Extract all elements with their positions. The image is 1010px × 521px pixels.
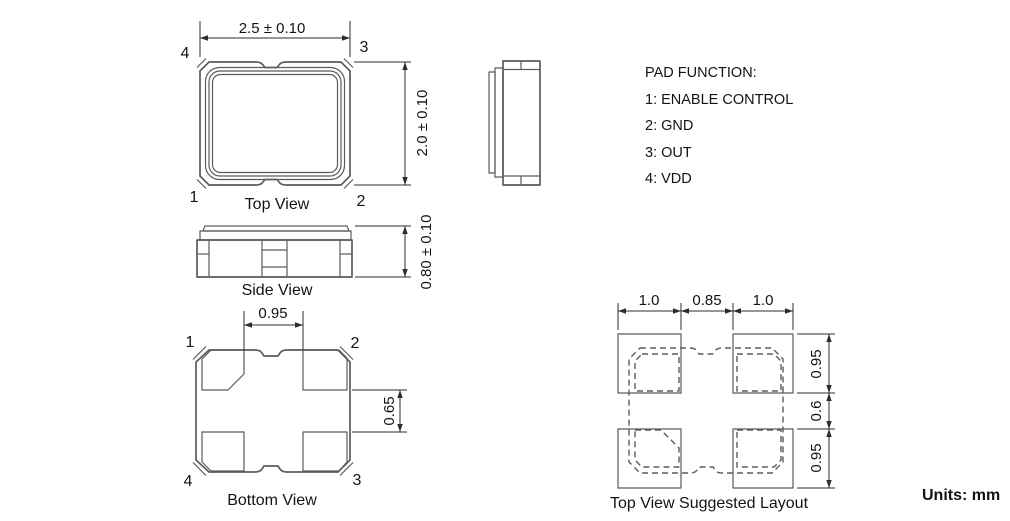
bottom-view-pads [202, 350, 347, 471]
layout-top-dimensions: 1.0 0.85 1.0 [618, 292, 793, 330]
top-view-width-dim-text: 2.5 ± 0.10 [239, 20, 306, 37]
layout-dim-center-gap: 0.85 [692, 292, 721, 309]
technical-drawing: 2.5 ± 0.10 2.0 ± 0.10 4 3 1 2 Top V [0, 0, 1010, 521]
top-view-height-dimension: 2.0 ± 0.10 [354, 62, 431, 185]
layout-land-pads [618, 334, 793, 488]
top-view-title: Top View [245, 196, 310, 213]
end-view-drawing [489, 61, 540, 185]
layout-land-pad-bottom-left [618, 429, 681, 488]
layout-dim-middle-gap: 0.6 [808, 401, 825, 422]
pad-function-block: PAD FUNCTION: 1: ENABLE CONTROL 2: GND 3… [645, 60, 793, 193]
pad-function-item-3: 3: OUT [645, 140, 793, 167]
bottom-view-pin-3-label: 3 [353, 472, 362, 489]
end-view-lid-step-1 [495, 68, 503, 177]
bottom-view-pad-1 [202, 350, 244, 390]
bottom-view-pin-1-label: 1 [186, 334, 195, 351]
bottom-view-package-outline [196, 350, 350, 472]
side-view-center-block [262, 240, 287, 277]
bottom-view-pad-4 [202, 432, 244, 471]
end-view-lid-step-2 [489, 72, 495, 173]
top-view-height-dim-text: 2.0 ± 0.10 [414, 90, 431, 157]
suggested-layout-drawing: 1.0 0.85 1.0 0.95 0.6 0.95 Top View Sugg… [610, 292, 835, 512]
pad-function-title: PAD FUNCTION: [645, 60, 793, 87]
side-view-height-dimension: 0.80 ± 0.10 [355, 215, 435, 290]
side-view-title: Side View [242, 282, 313, 299]
bottom-view-pad-3 [303, 432, 347, 471]
bottom-view-pad-gap-x-text: 0.95 [258, 305, 287, 322]
pad-function-item-4: 4: VDD [645, 166, 793, 193]
layout-dim-bottom-pad-height: 0.95 [808, 443, 825, 472]
layout-land-pad-bottom-right [733, 429, 793, 488]
top-view-width-dimension: 2.5 ± 0.10 [200, 20, 350, 57]
layout-dim-top-pad-height: 0.95 [808, 349, 825, 378]
layout-land-pad-top-left [618, 334, 681, 393]
bottom-view-pin-2-label: 2 [351, 335, 360, 352]
suggested-layout-title: Top View Suggested Layout [610, 495, 809, 512]
bottom-view-title: Bottom View [227, 492, 317, 509]
bottom-view-pad-gap-y-text: 0.65 [381, 396, 398, 425]
top-view-pin-1-label: 1 [190, 189, 199, 206]
top-view-corner-castellations [197, 59, 353, 189]
top-view-package-outline [200, 62, 350, 185]
layout-dim-right-pad-width: 1.0 [753, 292, 774, 309]
pad-function-item-1: 1: ENABLE CONTROL [645, 87, 793, 114]
side-view-end-caps [197, 240, 352, 277]
side-view-height-dim-text: 0.80 ± 0.10 [418, 215, 435, 290]
layout-land-pad-top-right [733, 334, 793, 393]
units-label: Units: mm [922, 487, 1000, 505]
side-view-lid-step [200, 231, 351, 240]
top-view-lid-seam-lines [206, 68, 345, 180]
bottom-view-pad-2 [303, 350, 347, 390]
end-view-body [503, 61, 540, 185]
layout-dashed-pad-1-bottom-left [635, 430, 679, 467]
top-view-drawing: 2.5 ± 0.10 2.0 ± 0.10 4 3 1 2 Top V [181, 20, 431, 213]
side-view-body [197, 240, 352, 277]
side-view-drawing: 0.80 ± 0.10 Side View [197, 215, 435, 299]
layout-package-pads-dashed [635, 354, 781, 467]
top-view-pin-4-label: 4 [181, 45, 190, 62]
top-view-pin-2-label: 2 [357, 193, 366, 210]
layout-dim-left-pad-width: 1.0 [639, 292, 660, 309]
layout-dashed-pad-bottom-right [737, 430, 781, 467]
bottom-view-pad-gap-y-dimension: 0.65 [352, 390, 407, 432]
layout-right-dimensions: 0.95 0.6 0.95 [797, 334, 835, 488]
bottom-view-pad-gap-x-dimension: 0.95 [244, 305, 303, 350]
layout-dashed-pad-top-left [635, 354, 679, 391]
pad-function-item-2: 2: GND [645, 113, 793, 140]
bottom-view-drawing: 0.95 0.65 1 2 4 3 Bottom View [184, 305, 407, 509]
side-view-lid-top [203, 226, 349, 231]
layout-package-outline-dashed [629, 348, 783, 473]
top-view-pin-3-label: 3 [360, 39, 369, 56]
package-drawing-sheet: 2.5 ± 0.10 2.0 ± 0.10 4 3 1 2 Top V [0, 0, 1010, 521]
layout-dashed-pad-top-right [737, 354, 781, 391]
bottom-view-pin-4-label: 4 [184, 473, 193, 490]
bottom-view-corner-castellations [193, 347, 353, 476]
